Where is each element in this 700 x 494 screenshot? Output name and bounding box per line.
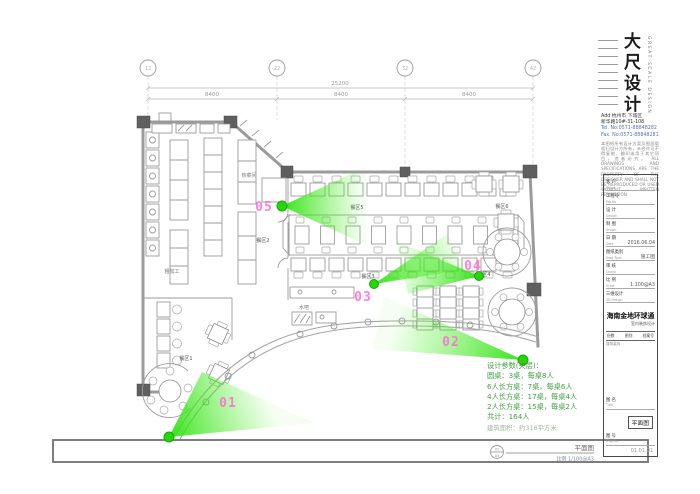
room-label-water-bar: 水吧 [299,304,309,311]
title-label-row: 图 名 Title [606,397,655,410]
row-label: 设 计 [606,208,616,213]
grid-bubble-label: 22 [274,66,280,72]
row-label: 比 例 [606,278,616,283]
dim-segment: 8400 [334,92,348,98]
rev-col: 图别 [625,333,633,339]
row-sublabel: Scale [606,284,616,289]
design-notes: 设计参数(夹层)： 圆桌：3桌，每桌8人 6人长方桌：7桌，每桌6人 4人长方桌… [487,361,605,433]
logo-subtitle: GREAT SCALE DESIGN [646,36,651,114]
table-row: 设 计Design [606,205,655,219]
phone-line: Tel. No:0571-88848282 [601,126,661,132]
room-label-hot-dishes: 热菜间 [241,172,256,179]
date-value: 2016.06.04 [628,241,655,246]
rev-col: 份数 [607,333,615,339]
area-label-6: 餐区6 [495,203,508,210]
table-row: 工程号Pro.No [606,191,655,205]
revision-header: 份数 图别 档案号 [606,331,655,341]
dwg-type-value: 施工图 [641,253,655,260]
drawing-sheet: 12 22 32 42 25200 8400 8400 8400 [0,0,700,494]
grid-bubble-label: 12 [145,66,151,72]
row-sublabel: 3D.Design [606,298,623,303]
camera-01-cone [169,372,315,437]
address-block: Add 杭州市 下城区 新华路10#-31-108 Tel. No:0571-8… [601,114,661,139]
camera-01-label: 01 [219,396,237,411]
rev-col: 档案号 [643,333,654,339]
row-sublabel: Check [606,270,616,275]
table-row-scale: 比 例Scale 1:100@A3 [606,275,655,289]
dim-segment: 8400 [205,92,219,98]
note-line: 圆桌：3桌，每桌8人 [487,371,605,381]
note-line: 2人长方桌：15桌，每桌2人 [487,402,605,412]
fax-line: Fax. No:0571-88848281 [601,133,661,139]
dwgno-sublabel: Dwg.No [606,439,655,443]
row-sublabel: Design [606,214,617,219]
dim-total: 25200 [331,81,349,87]
dwgno-label-row: 图 号 Dwg.No [606,433,655,446]
grid-bubble-label: 42 [530,66,536,72]
table-row: 三维设计3D.Design [606,289,655,303]
row-label: 审 核 [606,264,616,269]
grid-axes: 12 22 32 42 25200 8400 8400 8400 [140,60,541,170]
scale-value: 1:100@A3 [630,283,655,288]
row-label: 图纸类别 [606,250,623,255]
table-row-dwg-type: 图纸类别Dwg.Type 施工图 [606,247,655,261]
area-label-2: 餐区2 [256,237,269,244]
dim-segment: 8400 [462,92,476,98]
camera-03-dot [370,280,379,289]
note-line: 建筑面积：约316平方米 [487,423,605,433]
detail-ref-bottom: A3 [495,454,499,458]
title-block: 大尺设计 GREAT SCALE DESIGN Add 杭州市 下城区 新华路1… [596,28,664,464]
table-row: 客 户Client [606,177,655,191]
logo-comb-lines [598,40,618,106]
room-label-prep: 粗加工 [164,268,179,275]
camera-05-label: 05 [255,200,273,215]
table-row-date: 日 期Date 2016.06.04 [606,233,655,247]
note-line: 设计参数(夹层)： [487,361,605,371]
row-sublabel: Drawn [606,228,616,233]
drawing-scale: 比例 1/100@A3 [556,456,594,463]
note-line: 6人长方桌：7桌，每桌6人 [487,382,605,392]
note-line: 4人长方桌：17桌，每桌4人 [487,392,605,402]
row-label: 工程号 [606,194,619,199]
table-row: 制 图Drawn [606,219,655,233]
table-row: 审 核Check [606,261,655,275]
row-sublabel: Pro.No [606,200,619,205]
camera-04-label: 04 [464,259,482,274]
row-sublabel: Date [606,242,616,247]
bottom-bar: 01 A3 平面图 比例 1/100@A3 [53,440,648,463]
title-block-table: 客 户Client 工程号Pro.No 设 计Design 制 图Drawn 日… [603,174,658,457]
row-label: 日 期 [606,236,616,241]
project-subtitle: 室内装饰设计 [606,321,655,327]
row-label: 制 图 [606,222,616,227]
camera-02-label: 02 [442,335,460,350]
area-label-3: 餐区3 [361,273,374,280]
title-sublabel: Title [606,403,655,407]
camera-01-dot [164,432,174,442]
row-sublabel: Client [606,186,616,191]
row-sublabel: Dwg.Type [606,256,623,261]
drawing-number: 01.01.01 [631,448,653,454]
drawing-title: 平面图 [575,444,595,452]
camera-05-dot [277,201,287,211]
project-name: 海南金地环球通 [606,310,655,320]
row-label: 客 户 [606,180,616,185]
detail-ref-top: 01 [495,448,499,452]
area-label-1: 餐区1 [179,355,192,362]
row-label: 三维设计 [606,292,623,297]
grid-bubble-label: 32 [402,66,408,72]
drawing-name-stamp: 平面图 [628,416,653,429]
logo-text: 大尺设计 [618,32,643,116]
camera-03-label: 03 [354,290,372,305]
note-line: 共计：164人 [487,412,605,422]
